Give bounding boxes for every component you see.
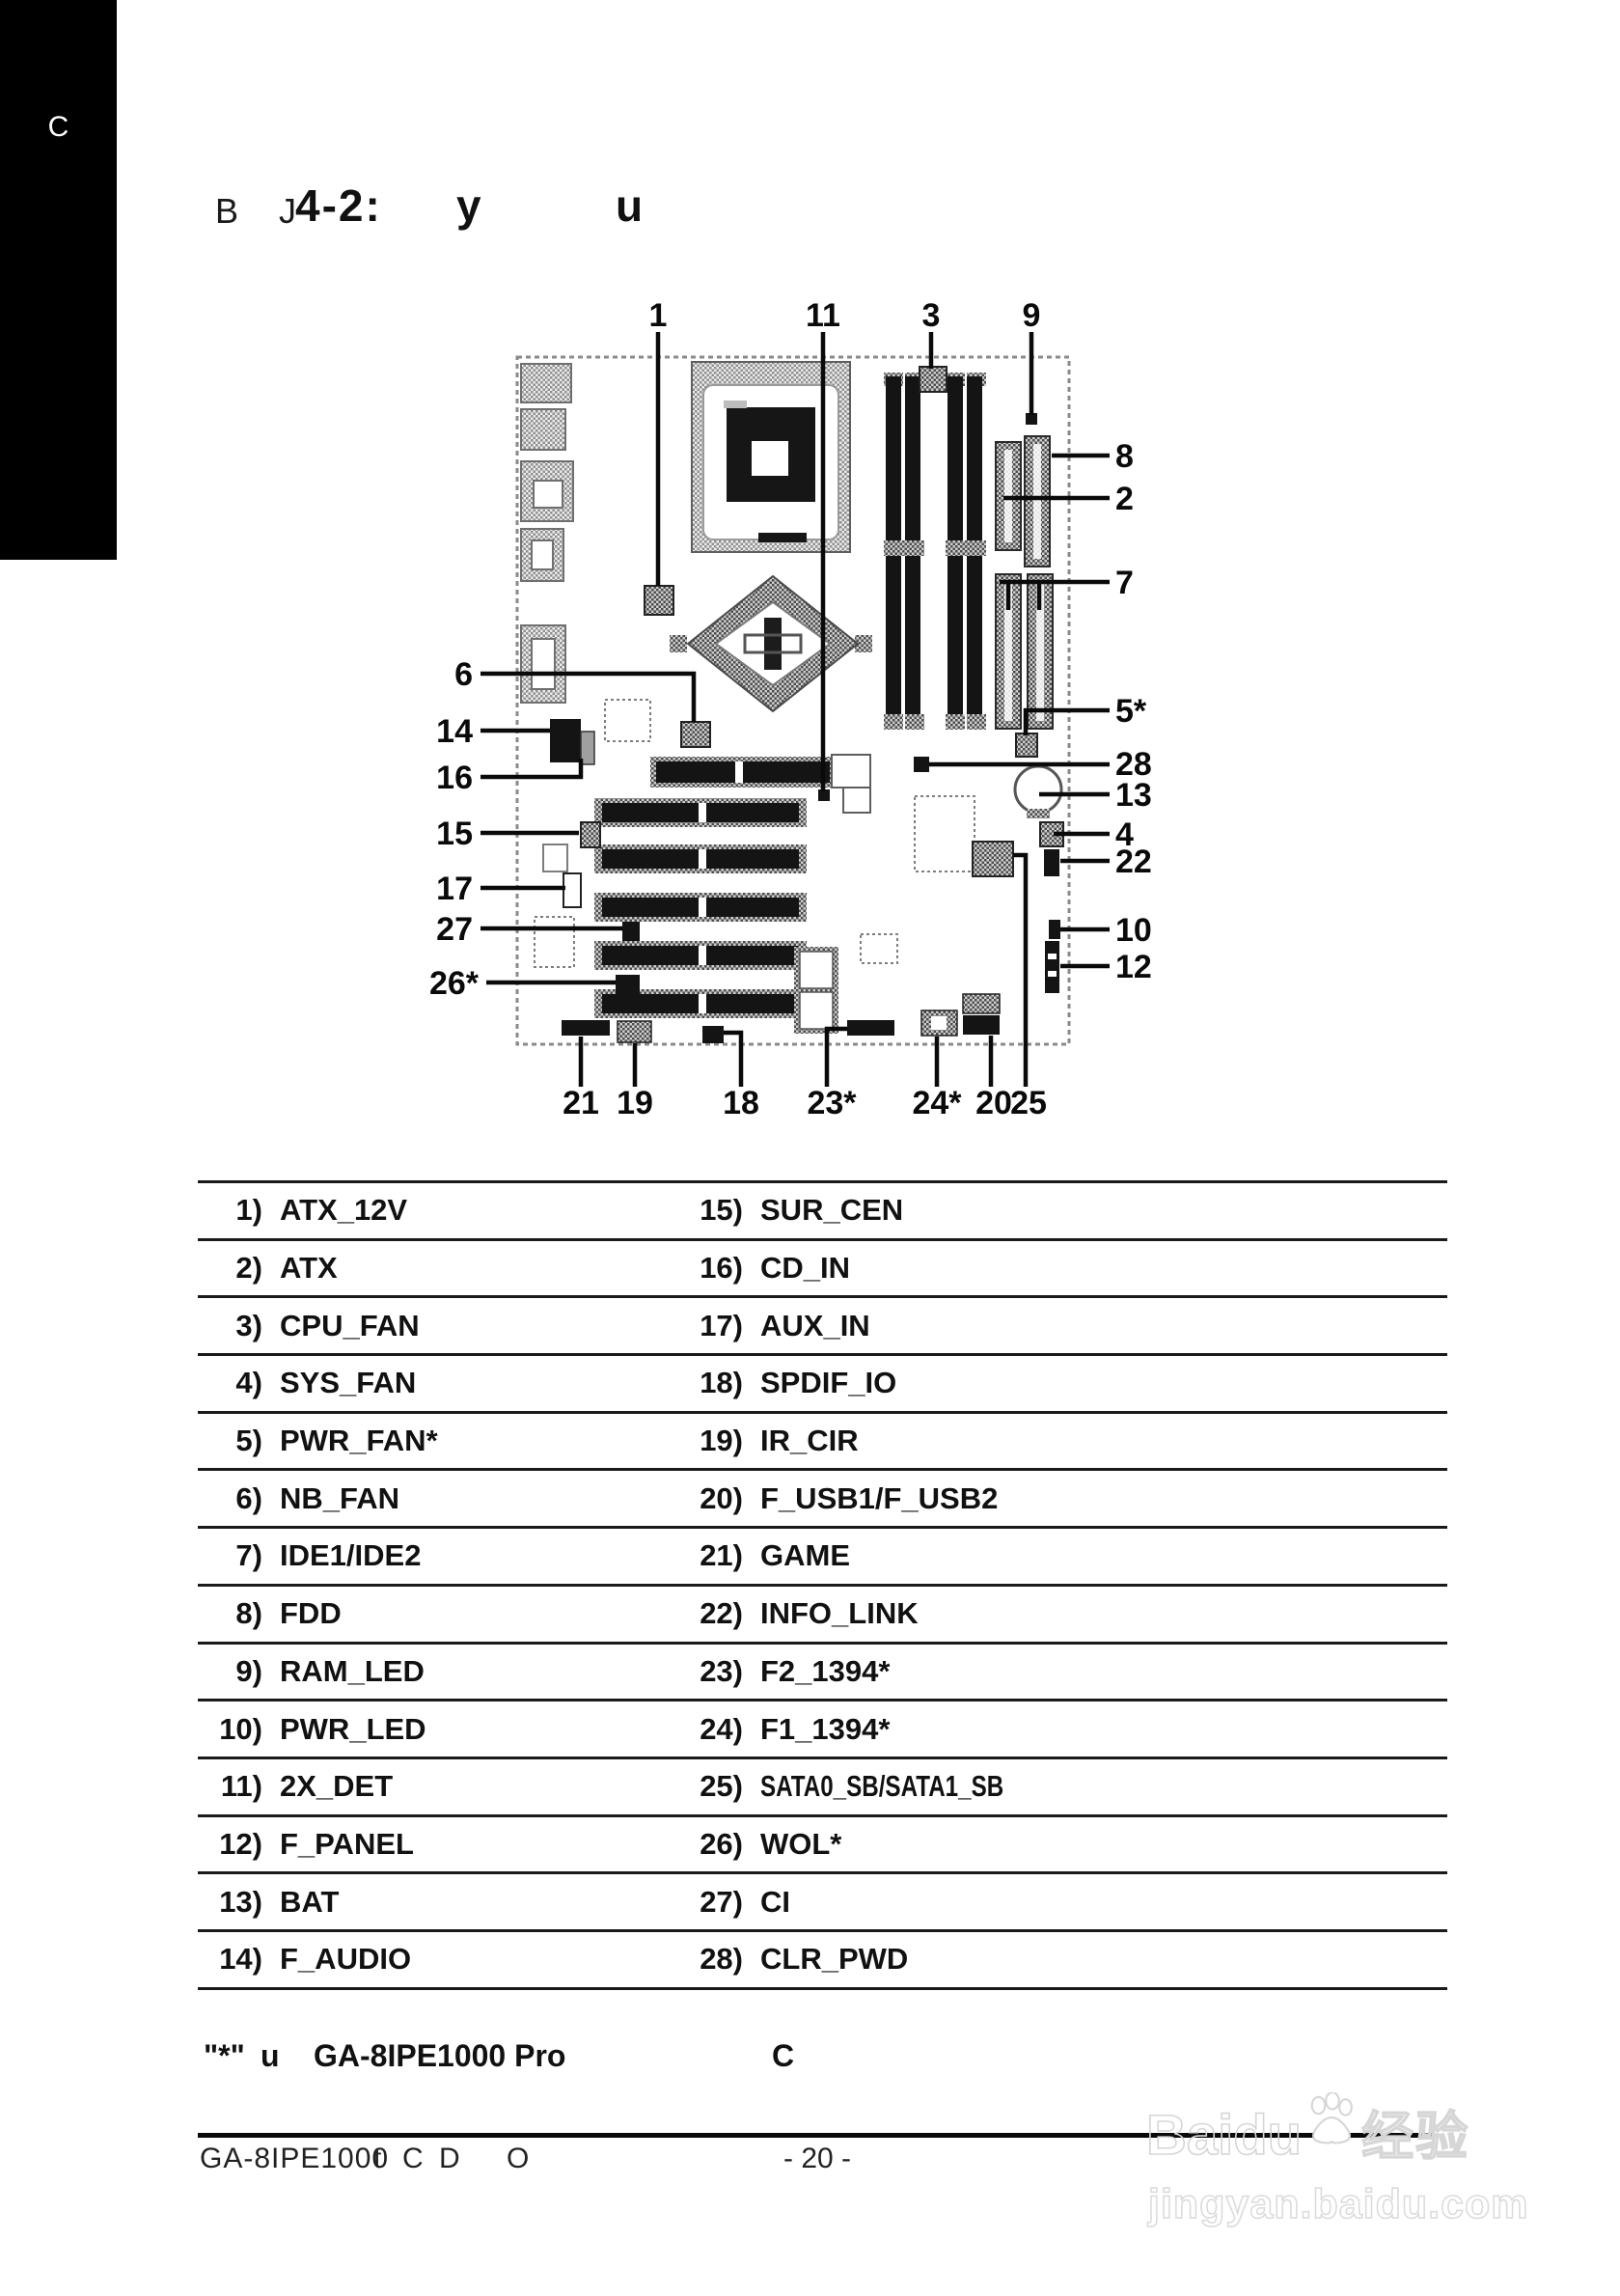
callout-label-22: 22	[1115, 844, 1152, 880]
info-link-connector	[1044, 849, 1059, 876]
table-cell-label: CD_IN	[743, 1251, 1447, 1286]
table-cell-label: SATA0_SB/SATA1_SB	[743, 1769, 1447, 1804]
pwr-fan-connector	[1016, 733, 1037, 757]
table-cell-label: FDD	[262, 1596, 691, 1631]
ir-cir-connector	[618, 1021, 651, 1042]
callout-label-8: 8	[1115, 438, 1134, 475]
aux-in-connector	[563, 873, 581, 907]
footer-fragment-t: t	[373, 2143, 381, 2175]
title-fragment-1: y	[456, 180, 481, 232]
callout-label-18: 18	[723, 1085, 759, 1121]
footnote-fragment-2: C	[772, 2038, 794, 2074]
table-cell-number: 23)	[691, 1654, 743, 1689]
table-cell-label: PWR_FAN*	[262, 1424, 691, 1458]
nb-fan-connector	[681, 722, 710, 747]
ieee1394-bracket	[794, 947, 838, 1034]
table-row: 5)PWR_FAN*19)IR_CIR	[198, 1414, 1447, 1472]
cpu-fan-connector	[920, 367, 947, 392]
table-cell-label: F2_1394*	[743, 1654, 1447, 1689]
callout-label-6: 6	[454, 656, 473, 693]
footer-fragment-d: D	[439, 2143, 460, 2175]
footer-rule	[198, 2133, 1432, 2138]
cpu-socket	[692, 362, 850, 552]
table-cell-number: 3)	[198, 1309, 262, 1343]
table-cell-number: 24)	[691, 1712, 743, 1747]
table-cell-label: ATX	[262, 1251, 691, 1286]
callout-label-27: 27	[436, 911, 473, 948]
f-panel-connector	[1045, 941, 1059, 993]
table-cell-label: NB_FAN	[262, 1481, 691, 1516]
table-cell-label: IR_CIR	[743, 1424, 1447, 1458]
baidu-paw-icon	[1304, 2092, 1359, 2148]
table-cell-number: 21)	[691, 1538, 743, 1573]
table-cell-number: 9)	[198, 1654, 262, 1689]
table-row: 12)F_PANEL26)WOL*	[198, 1817, 1447, 1875]
table-cell-number: 18)	[691, 1366, 743, 1400]
table-row: 4)SYS_FAN18)SPDIF_IO	[198, 1356, 1447, 1414]
manual-page: C B J 4-2: y u	[0, 0, 1620, 2296]
callout-label-11: 11	[806, 297, 840, 334]
table-cell-number: 4)	[198, 1366, 262, 1400]
title-fragment-2: u	[616, 180, 643, 232]
table-row: 11)2X_DET25)SATA0_SB/SATA1_SB	[198, 1759, 1447, 1817]
footnote-asterisk: "*"	[204, 2038, 245, 2074]
footnote-model: GA-8IPE1000 Pro	[314, 2038, 565, 2074]
callout-label-25: 25	[1010, 1085, 1047, 1121]
table-cell-label: SUR_CEN	[743, 1193, 1447, 1228]
table-cell-number: 28)	[691, 1942, 743, 1977]
callout-label-26*: 26*	[429, 965, 480, 1002]
table-cell-label: F_PANEL	[262, 1827, 691, 1862]
table-cell-label: RAM_LED	[262, 1654, 691, 1689]
table-cell-label: WOL*	[743, 1827, 1447, 1862]
f-audio-connector	[550, 719, 581, 762]
table-row: 14)F_AUDIO28)CLR_PWD	[198, 1932, 1447, 1990]
table-row: 1)ATX_12V15)SUR_CEN	[198, 1183, 1447, 1241]
sur-cen-connector	[581, 822, 600, 847]
table-cell-label: INFO_LINK	[743, 1596, 1447, 1631]
table-row: 13)BAT27)CI	[198, 1874, 1447, 1932]
callout-label-7: 7	[1115, 565, 1134, 601]
table-cell-number: 1)	[198, 1193, 262, 1228]
motherboard-diagram: 111396141615172726*8275*2813422101221191…	[405, 280, 1206, 1139]
connector-table: 1)ATX_12V15)SUR_CEN2)ATX16)CD_IN3)CPU_FA…	[198, 1180, 1447, 1990]
chapter-letter: C	[0, 111, 117, 144]
table-cell-number: 15)	[691, 1193, 743, 1228]
footer: GA-8IPE1000 t C D O - 20 -	[0, 2143, 1620, 2181]
atx-12v-connector	[645, 586, 673, 615]
table-cell-label: SPDIF_IO	[743, 1366, 1447, 1400]
footer-model: GA-8IPE1000	[200, 2143, 389, 2175]
f2-1394-connector	[847, 1020, 894, 1036]
footer-fragment-o: O	[507, 2143, 529, 2175]
footer-fragment-c: C	[402, 2143, 424, 2175]
callout-label-15: 15	[436, 816, 473, 852]
table-row: 9)RAM_LED23)F2_1394*	[198, 1645, 1447, 1702]
callout-label-16: 16	[436, 760, 473, 796]
table-cell-number: 8)	[198, 1596, 262, 1631]
clr-pwd-jumper	[914, 757, 929, 772]
page-number: - 20 -	[783, 2143, 851, 2175]
table-cell-number: 16)	[691, 1251, 743, 1286]
table-cell-label: CLR_PWD	[743, 1942, 1447, 1977]
table-cell-label: AUX_IN	[743, 1309, 1447, 1343]
fdd-connector	[1025, 436, 1050, 567]
callout-label-12: 12	[1115, 949, 1152, 985]
table-row: 8)FDD22)INFO_LINK	[198, 1587, 1447, 1645]
table-cell-label: GAME	[743, 1538, 1447, 1573]
callout-label-23*: 23*	[807, 1085, 857, 1121]
callout-label-17: 17	[436, 871, 473, 907]
table-cell-label: PWR_LED	[262, 1712, 691, 1747]
callout-label-1: 1	[649, 297, 668, 334]
table-cell-label: F_USB1/F_USB2	[743, 1481, 1447, 1516]
callout-label-3: 3	[922, 297, 941, 334]
table-cell-number: 12)	[198, 1827, 262, 1862]
table-cell-number: 7)	[198, 1538, 262, 1573]
chapter-sidebar: C	[0, 0, 117, 560]
callout-label-10: 10	[1115, 912, 1152, 949]
callout-label-19: 19	[617, 1085, 653, 1121]
table-cell-label: 2X_DET	[262, 1769, 691, 1804]
table-row: 3)CPU_FAN17)AUX_IN	[198, 1298, 1447, 1356]
table-cell-number: 19)	[691, 1424, 743, 1458]
callout-label-21: 21	[563, 1085, 599, 1121]
table-cell-number: 11)	[198, 1769, 262, 1804]
f1-1394-connector	[921, 1010, 957, 1036]
table-row: 7)IDE1/IDE221)GAME	[198, 1529, 1447, 1587]
table-cell-label: F1_1394*	[743, 1712, 1447, 1747]
callout-label-9: 9	[1023, 297, 1041, 334]
table-cell-number: 14)	[198, 1942, 262, 1977]
footnote-fragment: u	[261, 2038, 280, 2074]
title-number: 4-2:	[295, 180, 382, 232]
table-cell-label: ATX_12V	[262, 1193, 691, 1228]
table-row: 10)PWR_LED24)F1_1394*	[198, 1701, 1447, 1759]
section-title: B J 4-2: y u	[0, 180, 1620, 237]
table-row: 6)NB_FAN20)F_USB1/F_USB2	[198, 1471, 1447, 1529]
wol-connector	[616, 975, 640, 994]
sata-connectors	[973, 842, 1013, 876]
table-cell-number: 26)	[691, 1827, 743, 1862]
table-cell-label: BAT	[262, 1885, 691, 1920]
table-cell-number: 13)	[198, 1885, 262, 1920]
table-cell-number: 25)	[691, 1769, 743, 1804]
game-connector	[562, 1020, 610, 1036]
table-cell-label: CI	[743, 1885, 1447, 1920]
callout-label-13: 13	[1115, 777, 1152, 814]
table-cell-label: SYS_FAN	[262, 1366, 691, 1400]
table-cell-number: 20)	[691, 1481, 743, 1516]
callout-label-20: 20	[975, 1085, 1012, 1121]
table-row: 2)ATX16)CD_IN	[198, 1241, 1447, 1299]
pwr-led-connector	[1049, 920, 1060, 939]
table-cell-label: CPU_FAN	[262, 1309, 691, 1343]
callout-label-2: 2	[1115, 481, 1134, 517]
table-cell-label: F_AUDIO	[262, 1942, 691, 1977]
callout-label-24*: 24*	[912, 1085, 962, 1121]
table-cell-number: 22)	[691, 1596, 743, 1631]
table-cell-number: 17)	[691, 1309, 743, 1343]
table-cell-number: 2)	[198, 1251, 262, 1286]
table-cell-number: 10)	[198, 1712, 262, 1747]
spdif-io-connector	[702, 1026, 724, 1043]
table-cell-number: 6)	[198, 1481, 262, 1516]
ci-connector	[622, 922, 640, 941]
table-cell-number: 27)	[691, 1885, 743, 1920]
footnote: "*" u GA-8IPE1000 Pro C	[0, 2038, 1620, 2089]
table-cell-number: 5)	[198, 1424, 262, 1458]
callout-label-5*: 5*	[1115, 693, 1147, 730]
watermark-site: jingyan.baidu.com	[1148, 2181, 1529, 2228]
table-cell-label: IDE1/IDE2	[262, 1538, 691, 1573]
callout-label-14: 14	[436, 713, 473, 750]
